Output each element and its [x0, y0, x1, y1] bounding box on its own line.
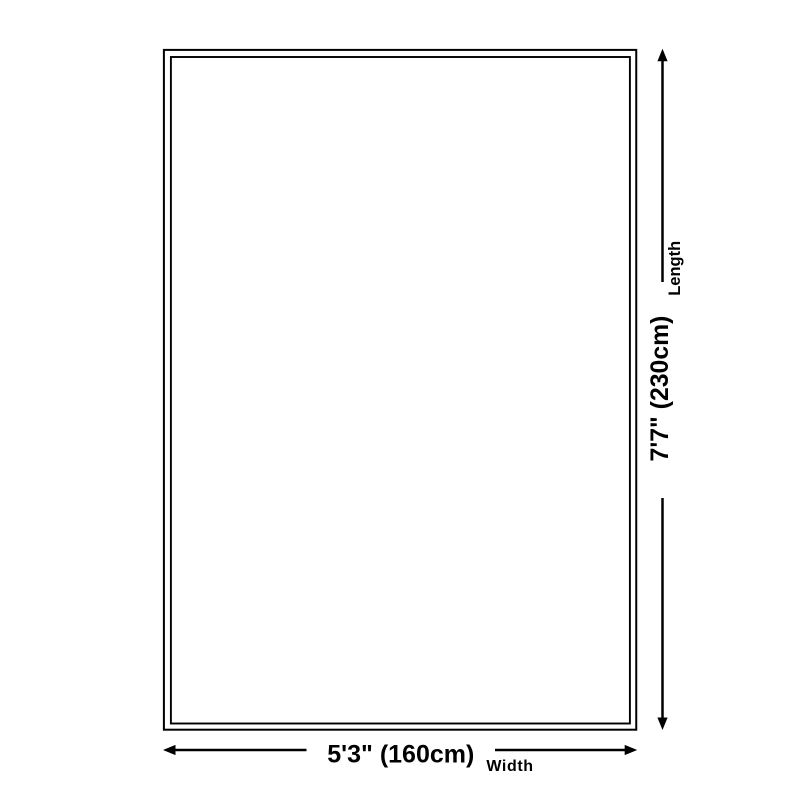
svg-text:Width: Width [486, 758, 533, 775]
svg-text:5'3" (160cm): 5'3" (160cm) [327, 741, 474, 769]
svg-text:7'7" (230cm): 7'7" (230cm) [647, 316, 674, 462]
svg-text:Length: Length [666, 241, 684, 296]
